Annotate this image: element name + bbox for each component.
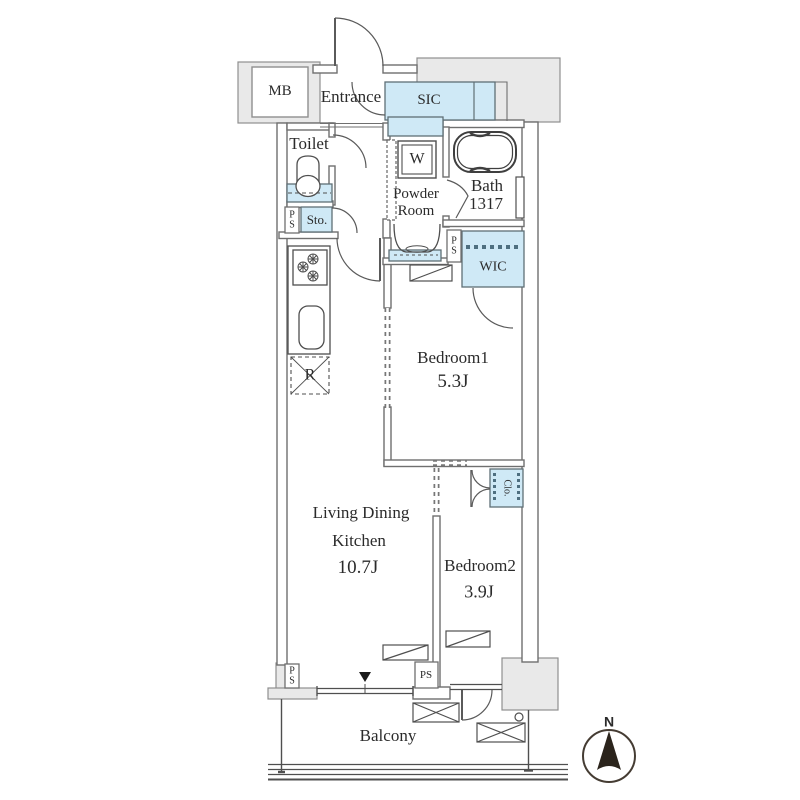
balcony-door — [462, 690, 492, 720]
label-entrance: Entrance — [321, 88, 381, 106]
label-bath: Bath — [471, 177, 503, 195]
label-bath-size: 1317 — [469, 195, 503, 213]
label-ldk-1: Living Dining — [313, 504, 410, 522]
outdoor-unit-icon — [413, 703, 459, 722]
label-ldk-area: 10.7J — [338, 558, 379, 578]
door-arc — [335, 18, 383, 66]
label-toilet: Toilet — [289, 135, 328, 153]
label-wic: WIC — [479, 261, 506, 276]
pillar — [502, 658, 558, 710]
door-arc — [472, 470, 490, 488]
bedroom2-window — [450, 685, 502, 690]
ac-unit-icon — [383, 645, 428, 660]
orientation-triangle-icon — [359, 672, 371, 682]
label-ldk-2: Kitchen — [332, 532, 386, 550]
floor-plan: MB Entrance SIC Toilet W Powder Room Bat… — [0, 0, 800, 800]
wall — [383, 65, 417, 73]
label-bedroom1-area: 5.3J — [437, 372, 468, 392]
label-closet: Clo. — [501, 480, 512, 497]
label-ps-4: PS — [288, 667, 297, 686]
wall — [277, 123, 287, 665]
label-balcony: Balcony — [360, 727, 417, 745]
storage-door-arc — [332, 208, 357, 233]
stove-burners-icon — [298, 254, 318, 281]
windows — [317, 684, 502, 696]
compass-icon — [583, 730, 635, 782]
label-north: N — [604, 715, 614, 730]
label-fridge: R — [305, 368, 316, 385]
outdoor-unit-icon — [477, 723, 525, 742]
ac-unit-icon — [446, 631, 490, 647]
wic-door-arc — [473, 288, 513, 328]
label-ps-2: PS — [450, 237, 459, 256]
closet-double-doors — [471, 470, 490, 507]
ac-unit-icon — [410, 265, 452, 281]
label-bedroom1: Bedroom1 — [417, 349, 489, 367]
label-powder-2: Room — [398, 204, 435, 220]
label-sto: Sto. — [307, 213, 328, 227]
bath-counter — [516, 177, 524, 218]
sink-icon — [299, 306, 324, 349]
shoe-closet-lower — [388, 117, 443, 136]
label-bedroom2: Bedroom2 — [444, 557, 516, 575]
door-arc — [472, 489, 490, 507]
entrance-door — [335, 18, 383, 66]
label-mb: MB — [268, 84, 291, 100]
door-arc — [462, 690, 492, 720]
north-needle — [597, 731, 621, 770]
label-ps-3: PS — [420, 670, 432, 682]
wall — [313, 65, 337, 73]
door-arc — [337, 238, 380, 281]
ldk-door — [337, 238, 380, 281]
label-powder-1: Powder — [393, 187, 439, 203]
bathtub-icon — [454, 132, 516, 172]
floor-plan-drawing — [0, 0, 800, 800]
powder-room-sliding-door — [387, 140, 396, 220]
toilet-door-arc — [333, 135, 366, 168]
bath-door-arc — [447, 180, 468, 218]
label-sic: SIC — [417, 93, 440, 109]
label-ps-1: PS — [288, 211, 297, 230]
label-washer: W — [409, 152, 424, 169]
drain-icon — [515, 713, 523, 721]
label-bedroom2-area: 3.9J — [464, 583, 494, 602]
